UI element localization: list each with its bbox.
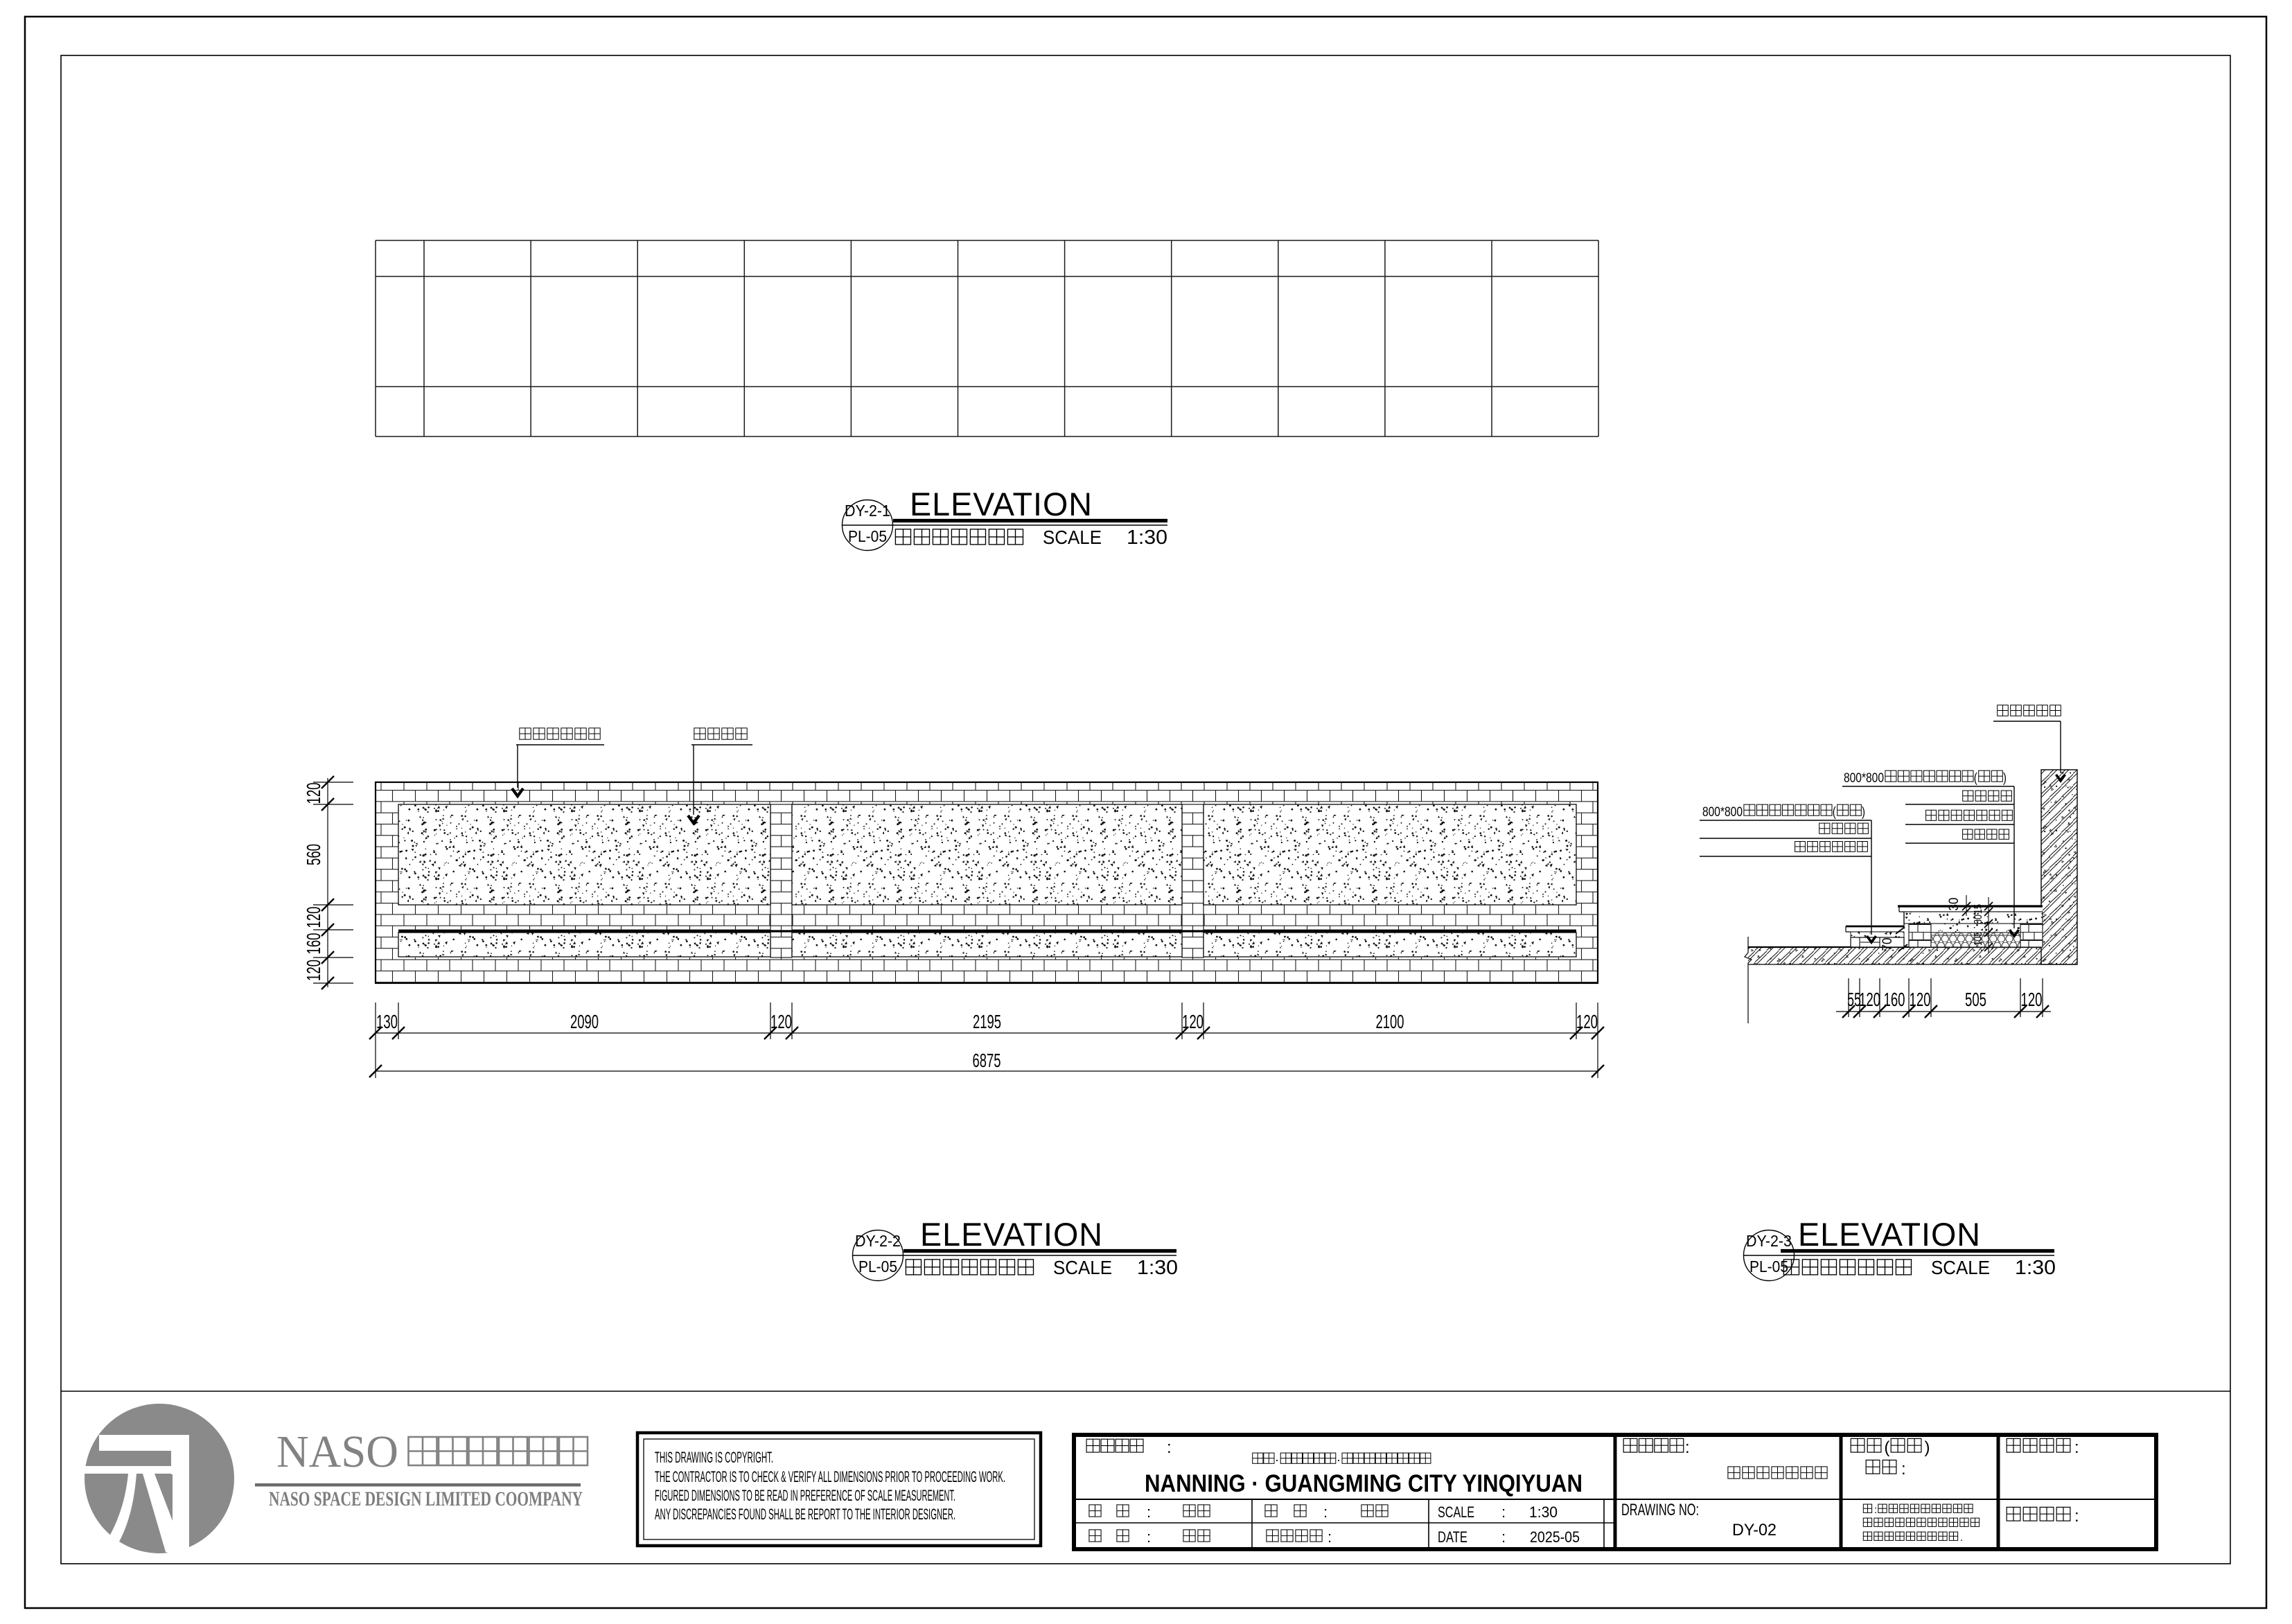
svg-text:120: 120 [770,1011,792,1032]
svg-text::: : [1328,1528,1332,1546]
svg-text:SCALE: SCALE [1438,1503,1474,1521]
svg-text:120: 120 [2021,989,2043,1010]
svg-text:THIS DRAWING IS COPYRIGHT.: THIS DRAWING IS COPYRIGHT. [655,1449,773,1466]
svg-text:DY-2-2: DY-2-2 [855,1232,901,1250]
svg-text:105: 105 [1973,932,1984,946]
svg-text:NANNING · GUANGMING CITY YINQI: NANNING · GUANGMING CITY YINQIYUAN [1145,1470,1583,1497]
svg-text::: : [1901,1460,1906,1479]
svg-text:120: 120 [1910,989,1931,1010]
svg-text:DY-2-3: DY-2-3 [1746,1232,1792,1250]
svg-text:120: 120 [303,960,324,981]
svg-text:ELEVATION: ELEVATION [1798,1216,1981,1253]
svg-text:1:30: 1:30 [1137,1257,1178,1279]
svg-text:1:30: 1:30 [1127,527,1167,549]
svg-text:130: 130 [376,1011,398,1032]
svg-text:): ) [2003,770,2007,786]
svg-text::: : [2074,1438,2079,1457]
svg-text:DRAWING NO:: DRAWING NO: [1621,1501,1699,1519]
svg-text::: : [1685,1438,1690,1457]
svg-text:120: 120 [303,907,324,928]
svg-text:PL-05: PL-05 [858,1257,897,1276]
svg-text:15: 15 [1973,904,1984,914]
svg-text::: : [1323,1503,1328,1521]
svg-text:2195: 2195 [973,1011,1001,1032]
svg-text:(: ( [1884,1438,1889,1457]
svg-text:·: · [1275,1452,1279,1467]
svg-text:560: 560 [303,844,324,865]
svg-text:): ) [1925,1438,1930,1457]
svg-text:ELEVATION: ELEVATION [920,1216,1103,1253]
svg-text:): ) [1862,804,1865,820]
svg-text::: : [1874,1504,1877,1516]
svg-text:1:30: 1:30 [2015,1257,2056,1279]
svg-text:NASO: NASO [276,1427,398,1477]
svg-text:DY-02: DY-02 [1732,1521,1777,1539]
svg-text:SCALE: SCALE [1931,1257,1990,1278]
svg-text:.: . [1960,1532,1963,1544]
svg-text:80: 80 [1973,915,1984,924]
svg-text:6875: 6875 [973,1050,1001,1071]
svg-text:SCALE: SCALE [1043,527,1102,548]
svg-text:(: ( [1833,804,1836,820]
svg-text:800*800: 800*800 [1702,804,1743,820]
svg-text::: : [2074,1507,2079,1526]
svg-text:·: · [1337,1452,1341,1467]
svg-text:2100: 2100 [1376,1011,1404,1032]
svg-text:505: 505 [1965,989,1986,1010]
svg-text:120: 120 [1576,1011,1598,1032]
svg-text:160: 160 [303,933,324,955]
svg-text:DATE: DATE [1438,1528,1467,1546]
svg-text:SCALE: SCALE [1053,1257,1112,1278]
svg-text:120: 120 [1859,989,1880,1010]
svg-text:FIGURED DIMENSIONS TO BE READ: FIGURED DIMENSIONS TO BE READ IN PREFERE… [655,1487,955,1504]
svg-text:NASO SPACE DESIGN LIMITED: NASO SPACE DESIGN LIMITED COOMPANY [269,1488,583,1510]
svg-text:120: 120 [303,783,324,804]
svg-text:2025-05: 2025-05 [1530,1528,1580,1546]
svg-text:70: 70 [1880,938,1895,951]
svg-text:2090: 2090 [570,1011,599,1032]
svg-text:ANY DISCREPANCIES FOUND SHALL: ANY DISCREPANCIES FOUND SHALL BE REPORT … [655,1506,955,1523]
svg-text::: : [1147,1528,1151,1546]
svg-text::: : [1501,1528,1506,1546]
svg-text:1:30: 1:30 [1529,1503,1558,1521]
svg-text:120: 120 [1182,1011,1204,1032]
svg-text::: : [1147,1503,1151,1521]
svg-text:ELEVATION: ELEVATION [910,486,1093,522]
svg-text:800*800: 800*800 [1844,770,1884,786]
svg-text:160: 160 [1884,989,1905,1010]
svg-text:PL-05: PL-05 [848,527,887,545]
svg-text:PL-05: PL-05 [1749,1257,1788,1276]
svg-text::: : [1167,1438,1172,1457]
svg-text:30: 30 [1947,898,1962,911]
svg-text:(: ( [1974,770,1977,786]
svg-text:THE CONTRACTOR IS TO CHECK & V: THE CONTRACTOR IS TO CHECK & VERIFY ALL … [655,1468,1005,1485]
svg-text::: : [1501,1503,1506,1521]
svg-text:DY-2-1: DY-2-1 [845,502,890,520]
